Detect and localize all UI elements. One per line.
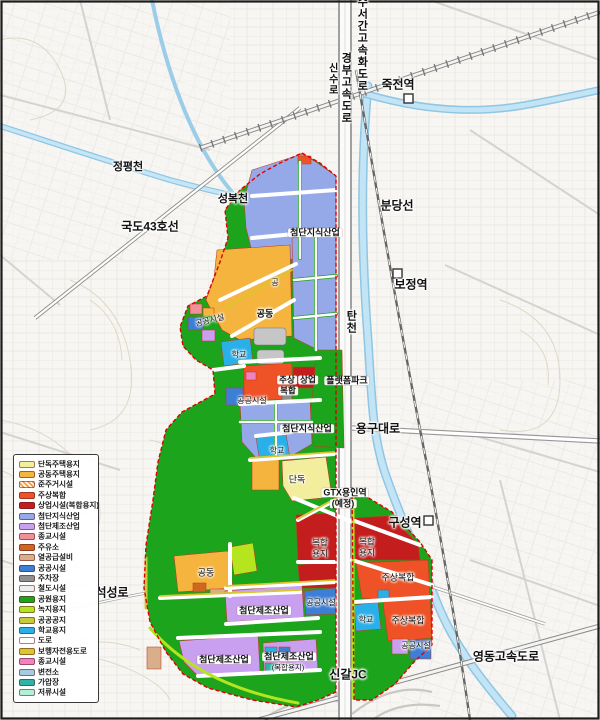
legend-swatch (19, 502, 35, 509)
legend-label: 첨단제조산업 (38, 521, 80, 532)
legend-swatch (19, 492, 35, 499)
legend-label: 상업시설(복합용지) (38, 500, 99, 511)
legend-swatch (19, 523, 35, 530)
legend-swatch (19, 554, 35, 561)
legend-label: 종교시설 (38, 531, 66, 542)
legend-swatch (19, 471, 35, 478)
jukjeon-station-marker (404, 94, 413, 103)
legend-label: 녹지용지 (38, 604, 66, 615)
legend-swatch (19, 606, 35, 613)
legend-label: 첨단지식산업 (38, 510, 80, 521)
legend-label: 공동주택용지 (38, 469, 80, 480)
legend-swatch (19, 585, 35, 592)
legend-label: 저류시설 (38, 687, 66, 698)
legend-swatch (19, 481, 35, 488)
legend-swatch (19, 565, 35, 572)
legend-swatch (19, 617, 35, 624)
legend-label: 가압장 (38, 676, 59, 687)
legend-label: 도로 (38, 635, 52, 646)
legend-label: 철도시설 (38, 583, 66, 594)
legend-swatch (19, 533, 35, 540)
legend-swatch (19, 689, 35, 696)
legend-label: 종교시설 (38, 656, 66, 667)
legend-label: 공원용지 (38, 593, 66, 604)
legend-swatch (19, 648, 35, 655)
legend-item: 학교용지 (19, 625, 94, 635)
legend-label: 보행자전용도로 (38, 645, 87, 656)
legend-swatch (19, 575, 35, 582)
legend-swatch (19, 513, 35, 520)
legend-item: 저류시설 (19, 688, 94, 698)
bojeong-station-marker (393, 269, 402, 278)
guseong-station-marker (424, 516, 433, 525)
legend-label: 단독주택용지 (38, 458, 80, 469)
legend-label: 학교용지 (38, 624, 66, 635)
legend-list: 단독주택용지공동주택용지준주거시설주상복합상업시설(복합용지)첨단지식산업첨단제… (19, 459, 94, 698)
legend-label: 변전소 (38, 666, 59, 677)
legend-label: 주유소 (38, 541, 59, 552)
legend-swatch (19, 544, 35, 551)
legend-label: 준주거시설 (38, 479, 73, 490)
legend-label: 공공시설 (38, 562, 66, 573)
legend: 단독주택용지공동주택용지준주거시설주상복합상업시설(복합용지)첨단지식산업첨단제… (13, 454, 99, 703)
legend-label: 주상복합 (38, 489, 66, 500)
legend-swatch (19, 627, 35, 634)
legend-swatch (19, 637, 35, 644)
legend-label: 공공공지 (38, 614, 66, 625)
legend-label: 열공급설비 (38, 552, 73, 563)
land-use-plan-map: 수서간고속화도로신수로경부고속도로죽전역정평천성복천국도43호선분당선보정역탄천… (0, 0, 600, 720)
legend-swatch (19, 679, 35, 686)
legend-swatch (19, 461, 35, 468)
legend-swatch (19, 596, 35, 603)
legend-swatch (19, 658, 35, 665)
legend-label: 주차장 (38, 573, 59, 584)
legend-swatch (19, 669, 35, 676)
